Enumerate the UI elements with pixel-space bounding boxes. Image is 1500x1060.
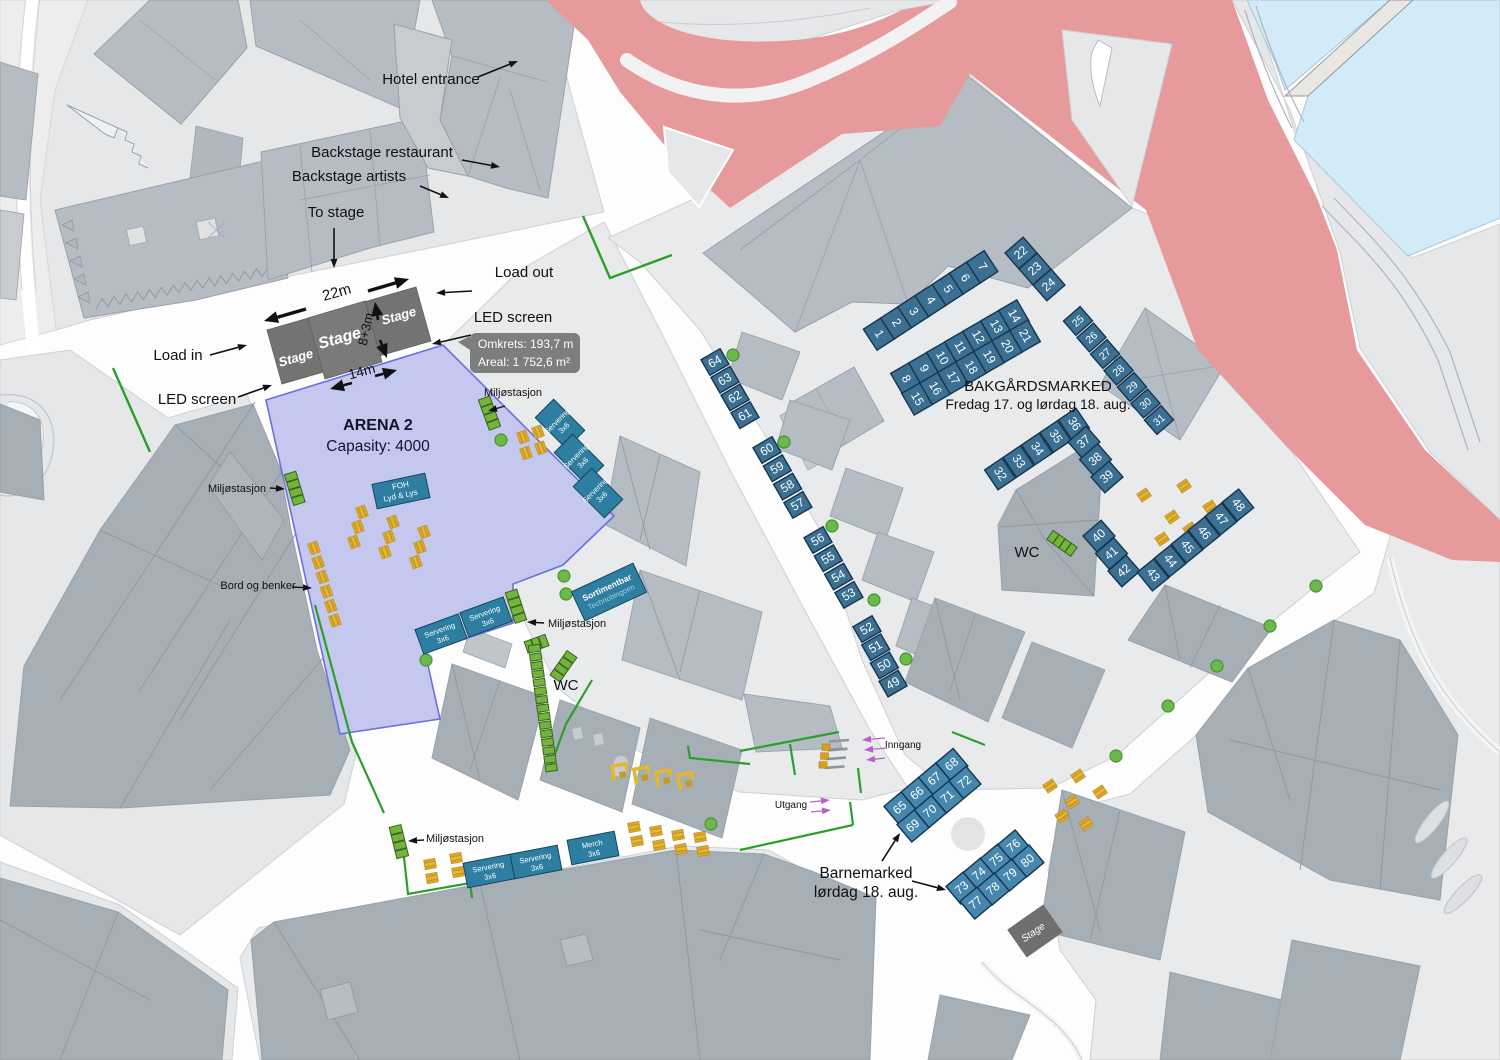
svg-text:Backstage artists: Backstage artists <box>292 168 406 185</box>
svg-text:lørdag 18. aug.: lørdag 18. aug. <box>814 884 918 901</box>
svg-text:Load out: Load out <box>495 264 554 281</box>
svg-text:Fredag 17. og lørdag 18. aug.: Fredag 17. og lørdag 18. aug. <box>945 396 1130 412</box>
svg-text:Inngang: Inngang <box>885 740 921 751</box>
svg-text:Hotel entrance: Hotel entrance <box>382 71 480 88</box>
svg-text:Capasity: 4000: Capasity: 4000 <box>326 438 430 455</box>
svg-text:Bord og benker: Bord og benker <box>220 580 296 592</box>
svg-text:LED screen: LED screen <box>474 309 552 326</box>
svg-text:Utgang: Utgang <box>775 800 807 811</box>
svg-text:Miljøstasjon: Miljøstasjon <box>426 833 484 845</box>
svg-text:To stage: To stage <box>308 204 365 221</box>
svg-text:Miljøstasjon: Miljøstasjon <box>208 483 266 495</box>
svg-text:BAKGÅRDSMARKED: BAKGÅRDSMARKED <box>964 378 1112 395</box>
svg-text:WC: WC <box>554 677 579 694</box>
svg-text:WC: WC <box>1015 544 1040 561</box>
svg-text:Miljøstasjon: Miljøstasjon <box>548 618 606 630</box>
svg-text:Load in: Load in <box>153 347 202 364</box>
svg-text:Barnemarked: Barnemarked <box>819 865 912 882</box>
svg-text:LED screen: LED screen <box>158 391 236 408</box>
svg-text:ARENA 2: ARENA 2 <box>343 417 413 434</box>
svg-text:Areal: 1 752,6 m²: Areal: 1 752,6 m² <box>478 355 570 369</box>
svg-text:Miljøstasjon: Miljøstasjon <box>484 387 542 399</box>
svg-text:Backstage restaurant: Backstage restaurant <box>311 144 454 161</box>
svg-text:Omkrets: 193,7 m: Omkrets: 193,7 m <box>478 337 573 351</box>
